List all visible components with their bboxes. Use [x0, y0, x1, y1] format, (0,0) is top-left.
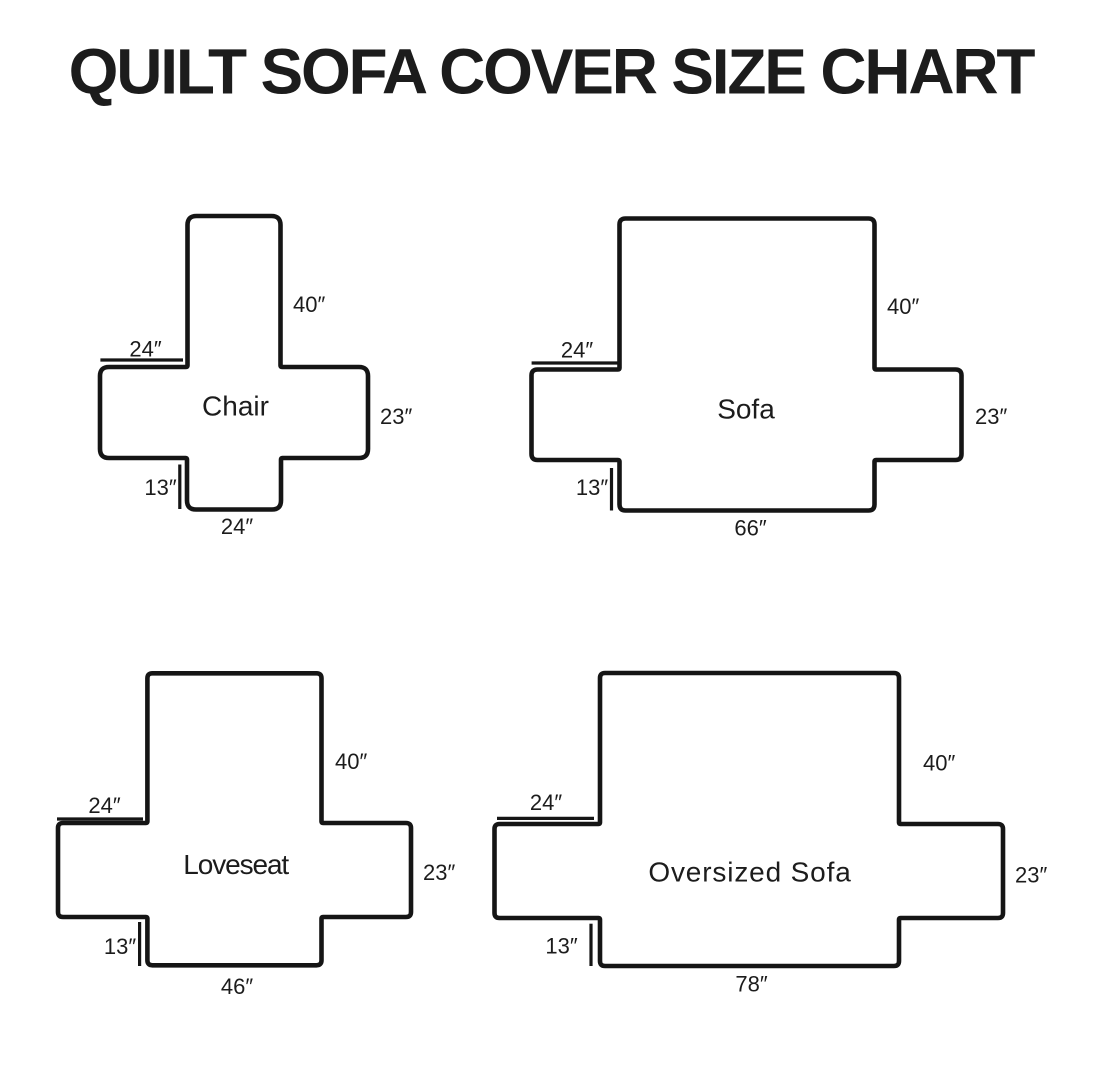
svg-text:Chair: Chair [202, 391, 269, 422]
svg-text:QUILT SOFA COVER SIZE CHART: QUILT SOFA COVER SIZE CHART [69, 36, 1036, 108]
svg-text:13″: 13″ [144, 475, 176, 500]
svg-text:23″: 23″ [975, 404, 1007, 429]
svg-text:13″: 13″ [576, 475, 608, 500]
svg-text:24″: 24″ [561, 338, 593, 363]
svg-text:40″: 40″ [293, 292, 325, 317]
svg-text:24″: 24″ [129, 337, 161, 362]
svg-text:Loveseat: Loveseat [183, 849, 289, 880]
svg-text:24″: 24″ [221, 514, 253, 539]
svg-text:24″: 24″ [530, 790, 562, 815]
svg-text:66″: 66″ [734, 516, 766, 541]
svg-text:23″: 23″ [423, 860, 455, 885]
svg-text:13″: 13″ [104, 934, 136, 959]
svg-text:13″: 13″ [545, 934, 577, 959]
svg-text:78″: 78″ [735, 972, 767, 997]
svg-text:Oversized Sofa: Oversized Sofa [648, 857, 851, 888]
svg-text:46″: 46″ [221, 974, 253, 999]
svg-text:40″: 40″ [923, 751, 955, 776]
svg-text:24″: 24″ [88, 793, 120, 818]
svg-text:Sofa: Sofa [717, 394, 775, 425]
svg-text:23″: 23″ [1015, 863, 1047, 888]
svg-text:40″: 40″ [335, 749, 367, 774]
svg-text:23″: 23″ [380, 404, 412, 429]
svg-text:40″: 40″ [887, 294, 919, 319]
